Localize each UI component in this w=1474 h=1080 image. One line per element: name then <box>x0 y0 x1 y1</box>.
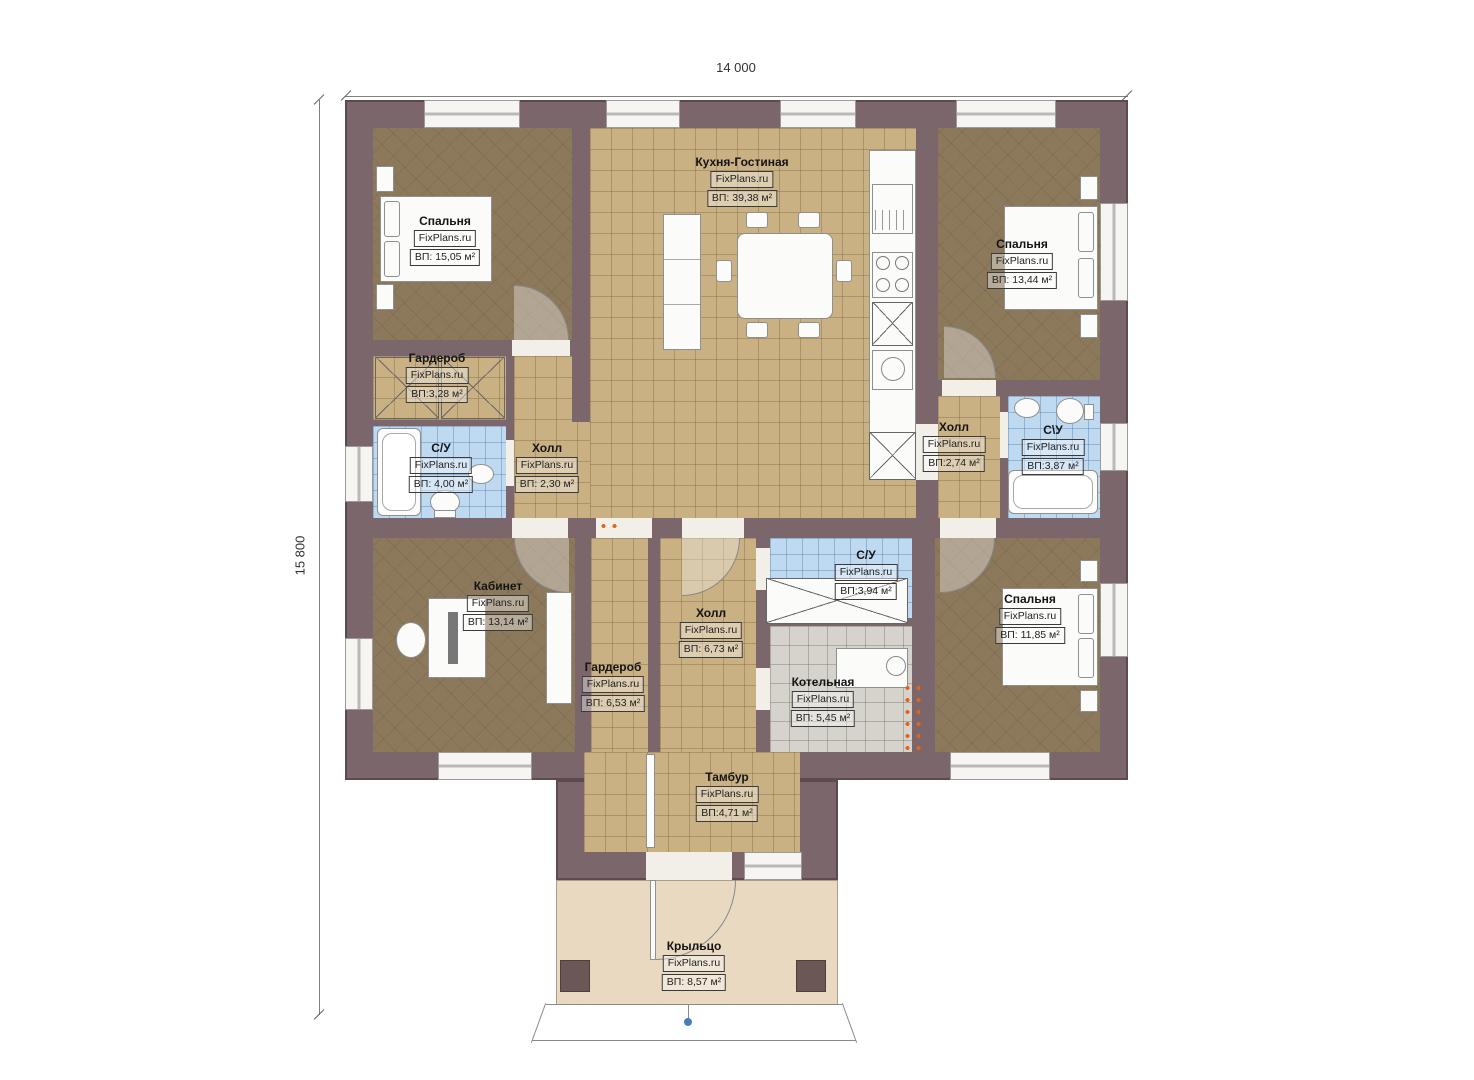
nightstand <box>1080 690 1098 712</box>
porch-step-edge <box>842 1003 857 1043</box>
nightstand <box>1080 176 1098 200</box>
window <box>1100 203 1128 301</box>
room-name: Холл <box>923 420 986 434</box>
chair <box>746 322 768 338</box>
room-watermark: FixPlans.ru <box>835 564 898 581</box>
door-opening <box>682 518 744 538</box>
radiator <box>598 520 622 532</box>
room-watermark: FixPlans.ru <box>792 691 855 708</box>
label-bedroom-top-left: Спальня FixPlans.ru ВП: 15,05 м² <box>410 214 480 266</box>
stove-burner <box>895 278 909 292</box>
window <box>956 100 1056 128</box>
window <box>438 752 532 780</box>
toilet-tank <box>434 510 456 518</box>
room-watermark: FixPlans.ru <box>582 676 645 693</box>
entry-door-leaf <box>650 880 656 960</box>
room-area: ВП:3,28 м² <box>406 386 468 403</box>
bathtub-basin <box>1013 475 1093 509</box>
room-name: Крыльцо <box>662 939 726 953</box>
door-opening <box>1000 412 1008 458</box>
room-wardrobe-bottom <box>591 538 648 752</box>
room-watermark: FixPlans.ru <box>516 457 579 474</box>
bathtub <box>1008 470 1098 514</box>
room-name: Гардероб <box>581 660 645 674</box>
room-watermark: FixPlans.ru <box>696 786 759 803</box>
label-bathroom-left: С/У FixPlans.ru ВП: 4,00 м² <box>409 441 473 493</box>
floor-plan-canvas: 14 000 15 800 <box>0 0 1474 1080</box>
room-name: Кабинет <box>463 579 533 593</box>
radiator <box>902 682 926 750</box>
entry-door-opening <box>646 852 732 880</box>
sink <box>1014 398 1040 418</box>
room-area: ВП: 4,00 м² <box>409 476 473 493</box>
room-watermark: FixPlans.ru <box>680 622 743 639</box>
room-watermark: FixPlans.ru <box>410 457 473 474</box>
room-area: ВП:4,71 м² <box>696 805 758 822</box>
room-name: Кухня-Гостиная <box>695 155 788 169</box>
nightstand <box>376 284 394 310</box>
door-opening <box>506 440 514 486</box>
room-area: ВП:3,87 м² <box>1022 458 1084 475</box>
door-opening <box>756 668 770 710</box>
nightstand <box>1080 560 1098 582</box>
label-porch: Крыльцо FixPlans.ru ВП: 8,57 м² <box>662 939 726 991</box>
porch-marker-dot <box>684 1018 692 1026</box>
door-opening <box>942 380 996 396</box>
room-watermark: FixPlans.ru <box>467 595 530 612</box>
cabinet <box>869 432 916 480</box>
room-name: Спальня <box>987 237 1057 251</box>
chair <box>716 260 732 282</box>
boiler-dial <box>886 656 906 676</box>
stove-burner <box>876 256 890 270</box>
window <box>345 446 373 502</box>
room-area: ВП: 5,45 м² <box>791 710 855 727</box>
room-watermark: FixPlans.ru <box>923 436 986 453</box>
pillow <box>1078 212 1094 252</box>
window <box>950 752 1050 780</box>
pillow <box>1078 638 1094 678</box>
stove-burner <box>895 256 909 270</box>
porch-pillar <box>560 960 590 992</box>
nightstand <box>376 166 394 192</box>
window <box>744 852 802 880</box>
label-hall-right: Холл FixPlans.ru ВП:2,74 м² <box>923 420 986 472</box>
window <box>424 100 520 128</box>
room-vestibule <box>584 752 800 852</box>
room-name: Спальня <box>995 592 1065 606</box>
room-watermark: FixPlans.ru <box>414 230 477 247</box>
window <box>606 100 680 128</box>
toilet-tank <box>1084 404 1094 420</box>
chair <box>746 212 768 228</box>
room-watermark: FixPlans.ru <box>711 171 774 188</box>
label-bathroom-center: С/У FixPlans.ru ВП:3,94 м² <box>835 548 898 600</box>
stove-burner <box>876 278 890 292</box>
label-vestibule: Тамбур FixPlans.ru ВП:4,71 м² <box>696 770 759 822</box>
room-area: ВП: 2,30 м² <box>515 476 579 493</box>
room-watermark: FixPlans.ru <box>663 955 726 972</box>
label-bedroom-top-right: Спальня FixPlans.ru ВП: 13,44 м² <box>987 237 1057 289</box>
door-opening <box>940 518 996 538</box>
fridge-vents <box>875 210 910 230</box>
nightstand <box>1080 314 1098 338</box>
label-hall-center: Холл FixPlans.ru ВП: 6,73 м² <box>679 606 743 658</box>
dining-table <box>737 233 833 319</box>
door-opening <box>512 518 568 538</box>
porch-step-edge <box>532 1040 856 1041</box>
label-boiler: Котельная FixPlans.ru ВП: 5,45 м² <box>791 675 855 727</box>
label-wardrobe-left: Гардероб FixPlans.ru ВП:3,28 м² <box>406 351 469 403</box>
pillow <box>1078 594 1094 634</box>
room-area: ВП: 39,38 м² <box>707 190 777 207</box>
room-name: Гардероб <box>406 351 469 365</box>
toilet <box>1056 398 1084 424</box>
room-name: Котельная <box>791 675 855 689</box>
label-hall-left: Холл FixPlans.ru ВП: 2,30 м² <box>515 441 579 493</box>
door-opening <box>512 340 570 356</box>
room-area: ВП: 8,57 м² <box>662 974 726 991</box>
chair <box>798 322 820 338</box>
dimension-line-width <box>345 96 1128 97</box>
chair <box>836 260 852 282</box>
room-area: ВП: 11,85 м² <box>995 627 1065 644</box>
kitchen-island <box>663 214 701 350</box>
label-bathroom-right: С\У FixPlans.ru ВП:3,87 м² <box>1022 423 1085 475</box>
room-name: Тамбур <box>696 770 759 784</box>
room-area: ВП: 13,14 м² <box>463 614 533 631</box>
window <box>1100 423 1128 471</box>
room-watermark: FixPlans.ru <box>406 367 469 384</box>
room-name: С/У <box>835 548 898 562</box>
wall-stub <box>572 356 590 422</box>
room-name: Холл <box>679 606 743 620</box>
chair <box>798 212 820 228</box>
room-watermark: FixPlans.ru <box>1022 439 1085 456</box>
room-name: Холл <box>515 441 579 455</box>
office-chair <box>396 622 426 658</box>
room-area: ВП: 6,53 м² <box>581 695 645 712</box>
pillow <box>1078 258 1094 298</box>
window <box>780 100 856 128</box>
vestibule-door-leaf <box>646 754 655 848</box>
room-name: С/У <box>409 441 473 455</box>
window <box>345 638 373 710</box>
pillow <box>384 201 400 237</box>
dimension-width-label: 14 000 <box>686 60 786 75</box>
label-office: Кабинет FixPlans.ru ВП: 13,14 м² <box>463 579 533 631</box>
sofa <box>546 592 572 704</box>
dimension-line-height <box>319 100 320 1015</box>
room-area: ВП:2,74 м² <box>923 455 985 472</box>
porch-step-edge <box>531 1003 546 1043</box>
window <box>1100 583 1128 657</box>
porch-pillar <box>796 960 826 992</box>
dimension-height-label: 15 800 <box>293 526 308 586</box>
room-name: Спальня <box>410 214 480 228</box>
room-area: ВП: 13,44 м² <box>987 272 1057 289</box>
room-area: ВП:3,94 м² <box>835 583 897 600</box>
room-watermark: FixPlans.ru <box>999 608 1062 625</box>
room-area: ВП: 15,05 м² <box>410 249 480 266</box>
washing-machine-drum <box>881 357 905 381</box>
room-watermark: FixPlans.ru <box>991 253 1054 270</box>
label-bedroom-bottom-right: Спальня FixPlans.ru ВП: 11,85 м² <box>995 592 1065 644</box>
room-name: С\У <box>1022 423 1085 437</box>
cabinet <box>872 302 913 346</box>
pillow <box>384 241 400 277</box>
label-kitchen-living: Кухня-Гостиная FixPlans.ru ВП: 39,38 м² <box>695 155 788 207</box>
room-area: ВП: 6,73 м² <box>679 641 743 658</box>
label-wardrobe-bottom: Гардероб FixPlans.ru ВП: 6,53 м² <box>581 660 645 712</box>
desk-monitor <box>448 612 458 664</box>
porch-step-edge <box>546 1004 842 1005</box>
